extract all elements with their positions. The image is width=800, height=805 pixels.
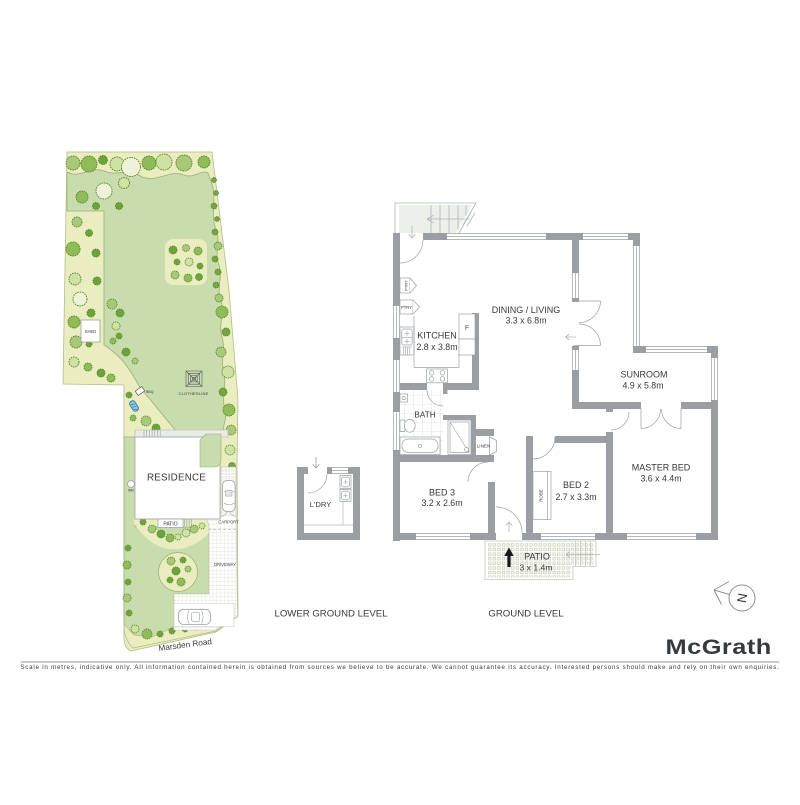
svg-text:2.8 x 3.8m: 2.8 x 3.8m [416,342,457,352]
svg-text:DRIVEWAY: DRIVEWAY [214,562,236,567]
svg-text:PATIO: PATIO [524,552,550,562]
svg-text:LINEN: LINEN [477,444,491,449]
svg-text:SUNROOM: SUNROOM [621,370,668,380]
svg-text:CLOTHESLINE: CLOTHESLINE [179,391,209,396]
svg-text:LOWER GROUND LEVEL: LOWER GROUND LEVEL [274,609,388,620]
svg-text:BBQ: BBQ [146,390,154,394]
svg-text:GROUND LEVEL: GROUND LEVEL [488,609,564,620]
svg-text:3.3 x 6.8m: 3.3 x 6.8m [505,316,546,326]
svg-text:L'DRY: L'DRY [310,500,332,509]
svg-text:3.6 x 4.4m: 3.6 x 4.4m [640,474,681,484]
svg-text:3.2 x 2.6m: 3.2 x 2.6m [421,498,462,508]
svg-text:RESIDENCE: RESIDENCE [147,473,206,484]
svg-text:CARPORT: CARPORT [218,519,239,524]
svg-text:ROBE: ROBE [539,489,544,502]
svg-text:PATIO: PATIO [163,522,177,528]
svg-text:PTRY: PTRY [401,305,412,310]
svg-text:BED 3: BED 3 [429,488,455,498]
svg-text:DINING / LIVING: DINING / LIVING [492,305,561,315]
svg-text:SHED: SHED [85,329,97,334]
svg-text:BED 2: BED 2 [563,480,589,490]
svg-text:Scale in metres, indicative on: Scale in metres, indicative only. All in… [20,664,779,671]
svg-text:F: F [465,325,469,332]
svg-text:4.9 x 5.8m: 4.9 x 5.8m [622,381,663,391]
svg-text:3 x 1.4m: 3 x 1.4m [520,563,553,573]
svg-text:MASTER BED: MASTER BED [632,463,691,473]
svg-text:PTRY: PTRY [404,280,409,291]
svg-text:McGrath: McGrath [666,635,772,659]
svg-text:WM: WM [128,489,134,493]
svg-text:BATH: BATH [414,411,435,420]
svg-text:2.7 x 3.3m: 2.7 x 3.3m [555,492,596,502]
svg-text:KITCHEN: KITCHEN [417,331,457,341]
